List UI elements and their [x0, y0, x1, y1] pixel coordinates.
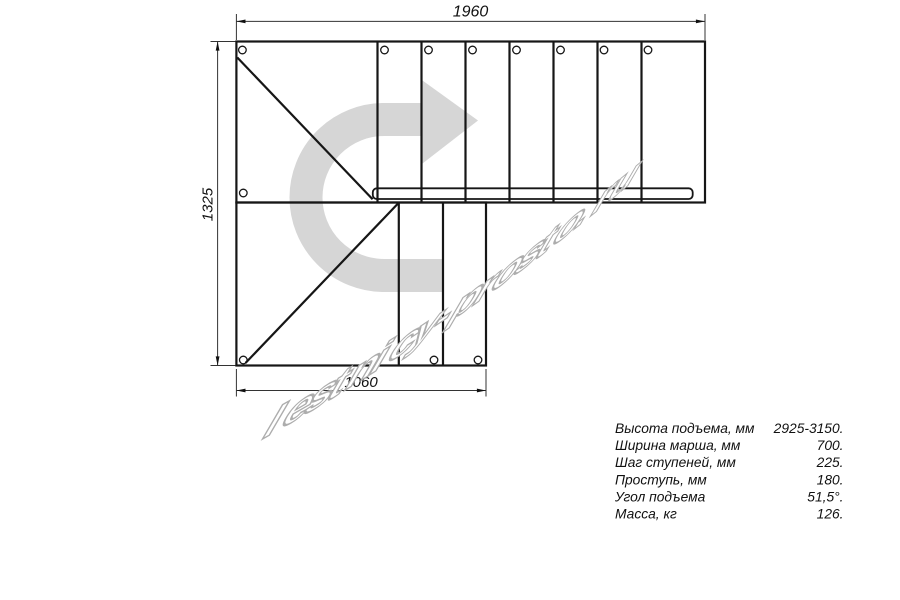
svg-text:Высота подъема, мм: Высота подъема, мм [615, 421, 755, 436]
svg-text:2925-3150.: 2925-3150. [773, 421, 844, 436]
svg-text:700.: 700. [817, 438, 844, 453]
svg-text:1960: 1960 [453, 4, 489, 21]
svg-text:Проступь, мм: Проступь, мм [615, 472, 707, 487]
svg-text:u: u [598, 140, 656, 216]
svg-text:Масса, кг: Масса, кг [615, 507, 677, 522]
svg-text:Ширина марша, мм: Ширина марша, мм [615, 438, 741, 453]
svg-text:Шаг ступеней, мм: Шаг ступеней, мм [615, 455, 736, 470]
svg-text:1325: 1325 [200, 187, 217, 221]
svg-text:180.: 180. [817, 472, 844, 487]
svg-text:Угол подъема: Угол подъема [614, 490, 706, 505]
svg-text:126.: 126. [817, 507, 844, 522]
svg-text:51,5°.: 51,5°. [807, 490, 843, 505]
svg-text:225.: 225. [816, 455, 844, 470]
